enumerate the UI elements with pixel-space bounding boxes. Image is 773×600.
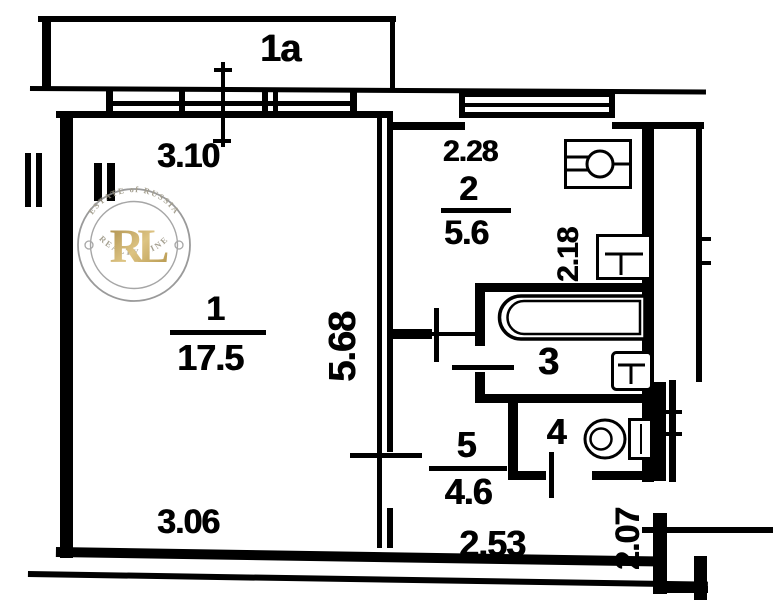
room-living-area: 17.5 xyxy=(162,340,258,376)
kitchen-door-tick xyxy=(434,308,439,362)
fraction-line xyxy=(170,330,266,335)
entry-wall xyxy=(653,382,666,481)
kitchen-window-line xyxy=(461,92,614,97)
washbasin-icon xyxy=(613,353,652,390)
balcony-label: 1a xyxy=(249,30,311,68)
dim-bathroom-depth: 2.18 xyxy=(554,219,584,291)
floor-plan-page: ESTATE of RUSSIA REALTY LINE RL 1a 3.10 … xyxy=(0,0,773,600)
bathroom-door-tick xyxy=(452,365,514,370)
left-outer-wall xyxy=(60,111,73,558)
stamp-initials: RL xyxy=(110,220,168,273)
room-kitchen-number: 2 xyxy=(448,172,488,206)
dimension-line xyxy=(221,62,225,147)
dim-hallway-width: 2.53 xyxy=(444,526,540,562)
room-living-number: 1 xyxy=(195,292,235,326)
partition-wall xyxy=(387,508,393,548)
dim-living-depth: 5.68 xyxy=(324,299,362,395)
walls xyxy=(25,16,773,600)
living-door-tick xyxy=(350,453,422,458)
toilet-bottom-wall xyxy=(508,471,546,480)
toilet-icon xyxy=(585,420,652,459)
kitchen-window-line xyxy=(461,103,614,107)
left-stub-line xyxy=(36,153,42,207)
hatch-tick xyxy=(666,432,682,436)
bathroom-left-wall xyxy=(475,292,485,346)
window-mullion xyxy=(459,92,465,118)
room-kitchen-area: 5.6 xyxy=(426,216,506,250)
plan-drawing: ESTATE of RUSSIA REALTY LINE RL xyxy=(0,0,773,600)
room-toilet-number: 4 xyxy=(538,414,574,450)
kitchen-top-wall xyxy=(390,122,465,130)
right-boundary-wall xyxy=(669,380,676,482)
kitchen-window-line xyxy=(461,112,614,118)
dim-living-width-top: 3.10 xyxy=(145,139,231,173)
balcony-top-wall xyxy=(38,16,396,22)
toilet-left-wall xyxy=(508,403,518,480)
fraction-line xyxy=(441,208,511,213)
partition-wall xyxy=(387,111,393,452)
stamp-left-dot xyxy=(85,241,93,249)
right-boundary-wall xyxy=(696,128,702,382)
room-bathroom-number: 3 xyxy=(528,343,568,381)
bathtub-icon xyxy=(499,296,645,339)
watermark-stamp: ESTATE of RUSSIA REALTY LINE RL xyxy=(78,184,190,301)
hatch-tick xyxy=(699,237,711,241)
balcony-left-wall xyxy=(42,16,51,88)
dim-kitchen-width: 2.28 xyxy=(428,137,512,167)
kitchen-sink-icon xyxy=(598,236,651,279)
stove-icon xyxy=(566,141,631,188)
bottom-outer-wall xyxy=(56,547,662,567)
room-hallway-number: 5 xyxy=(446,427,486,463)
hatch-tick xyxy=(666,410,682,414)
window-glass-line xyxy=(108,101,356,106)
bottom-boundary-line xyxy=(28,571,708,588)
left-stub-line xyxy=(25,153,31,207)
staircase-wall xyxy=(694,556,707,600)
toilet-door-tick xyxy=(549,452,554,498)
toilet-bottom-wall xyxy=(592,471,654,480)
window-mullion xyxy=(609,92,615,118)
dimension-tick xyxy=(214,68,232,72)
dim-entry-depth: 2.07 xyxy=(611,497,645,581)
kitchen-top-wall xyxy=(612,122,704,129)
partition-wall xyxy=(377,111,382,548)
dim-living-width-bottom: 3.06 xyxy=(143,505,233,539)
fixtures xyxy=(499,141,651,459)
entry-dimension-line xyxy=(642,527,773,533)
kitchen-bottom-wall xyxy=(390,329,432,339)
stamp-right-dot xyxy=(175,241,183,249)
balcony-right-wall xyxy=(390,16,395,90)
bathroom-bottom-wall xyxy=(475,394,655,403)
hatch-tick xyxy=(699,261,711,265)
room-hallway-area: 4.6 xyxy=(426,474,510,510)
